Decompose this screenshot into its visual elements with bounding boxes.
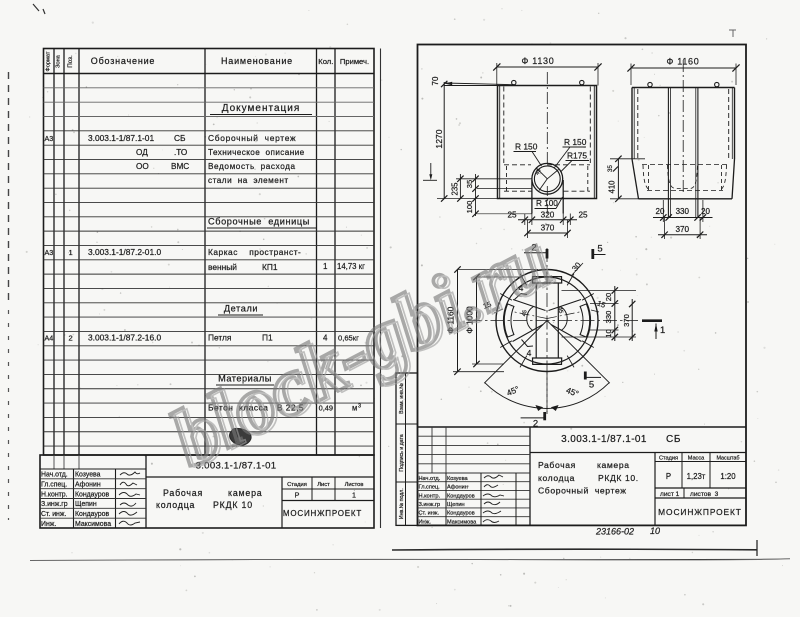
svg-text:Подпись и дата: Подпись и дата xyxy=(399,434,405,471)
svg-text:Масштаб: Масштаб xyxy=(716,456,739,462)
svg-text:Взам. инв.№: Взам. инв.№ xyxy=(399,383,405,414)
svg-text:СБ: СБ xyxy=(666,434,681,445)
svg-text:320: 320 xyxy=(541,210,555,219)
svg-text:Рабочая: Рабочая xyxy=(163,488,203,498)
svg-text:Нач.отд.: Нач.отд. xyxy=(41,472,68,479)
svg-text:Максимова: Максимова xyxy=(447,519,477,525)
svg-text:Инв.№ подл.: Инв.№ подл. xyxy=(399,488,405,519)
svg-text:370: 370 xyxy=(541,224,555,233)
svg-text:3.003.1-1/87.1-01: 3.003.1-1/87.1-01 xyxy=(88,133,154,143)
svg-text:35: 35 xyxy=(465,180,474,188)
svg-text:лист 1: лист 1 xyxy=(660,491,680,498)
svg-text:Примеч.: Примеч. xyxy=(340,57,369,66)
svg-text:23166-02: 23166-02 xyxy=(595,527,634,537)
svg-text:370: 370 xyxy=(675,225,689,234)
svg-text:З.инж.гр: З.инж.гр xyxy=(41,501,68,508)
svg-text:Н.контр.: Н.контр. xyxy=(419,493,441,499)
svg-text:25: 25 xyxy=(578,211,588,220)
svg-text:3: 3 xyxy=(358,404,361,410)
svg-text:Наименование: Наименование xyxy=(221,56,293,66)
svg-text:Сборочный чертеж: Сборочный чертеж xyxy=(208,133,296,143)
svg-text:Ведомость расхода: Ведомость расхода xyxy=(208,162,296,171)
svg-text:Кол.: Кол. xyxy=(318,57,333,66)
svg-text:Ст. инж.: Ст. инж. xyxy=(419,511,440,517)
svg-text:Козуева: Козуева xyxy=(447,476,469,482)
svg-text:Стадия: Стадия xyxy=(659,456,678,462)
svg-text:Р: Р xyxy=(666,472,671,481)
svg-text:330: 330 xyxy=(676,207,690,216)
svg-text:Зона: Зона xyxy=(56,54,62,68)
svg-text:Щепин: Щепин xyxy=(75,501,97,508)
svg-text:70: 70 xyxy=(431,76,440,85)
svg-text:Поз.: Поз. xyxy=(67,55,74,68)
svg-text:Ф 1130: Ф 1130 xyxy=(522,56,555,66)
svg-text:2: 2 xyxy=(533,419,538,430)
svg-text:1270: 1270 xyxy=(434,129,444,148)
svg-text:3.003.1-1/87.1-01: 3.003.1-1/87.1-01 xyxy=(561,434,647,445)
svg-text:Афонин: Афонин xyxy=(447,485,468,491)
svg-text:1,23т: 1,23т xyxy=(687,472,706,481)
svg-text:Сборочные единицы: Сборочные единицы xyxy=(208,217,310,227)
svg-text:ОД: ОД xyxy=(136,148,148,157)
svg-text:Кондауров: Кондауров xyxy=(75,491,109,498)
svg-text:.ТО: .ТО xyxy=(174,148,187,157)
svg-text:330: 330 xyxy=(604,311,613,324)
svg-text:Детали: Детали xyxy=(224,304,258,314)
svg-text:Н.контр.: Н.контр. xyxy=(41,491,68,498)
svg-text:3.003.1-1/87.2-01.0: 3.003.1-1/87.2-01.0 xyxy=(88,247,161,257)
svg-text:МОСИНЖПРОЕКТ: МОСИНЖПРОЕКТ xyxy=(658,507,742,517)
svg-text:1: 1 xyxy=(323,262,328,271)
svg-text:1: 1 xyxy=(69,248,73,257)
svg-text:КП1: КП1 xyxy=(262,262,278,272)
svg-text:20: 20 xyxy=(656,207,665,216)
svg-text:1: 1 xyxy=(660,325,665,336)
svg-text:Гл.спец.: Гл.спец. xyxy=(41,481,67,488)
svg-text:Масса: Масса xyxy=(688,456,705,462)
svg-text:РКДК 10.: РКДК 10. xyxy=(598,473,639,483)
svg-text:235: 235 xyxy=(451,182,460,196)
svg-text:РКДК 10: РКДК 10 xyxy=(213,500,253,510)
svg-text:Петля: Петля xyxy=(208,333,231,343)
svg-text:20: 20 xyxy=(701,207,710,216)
svg-text:камера: камера xyxy=(228,488,262,498)
svg-text:Лист: Лист xyxy=(317,482,330,488)
svg-text:А3: А3 xyxy=(45,134,54,143)
svg-text:R 150: R 150 xyxy=(515,142,538,152)
svg-text:Р: Р xyxy=(295,491,300,500)
svg-text:2: 2 xyxy=(69,334,73,343)
svg-text:Документация: Документация xyxy=(222,103,301,114)
svg-text:10: 10 xyxy=(604,329,613,337)
svg-text:Нач.отд.: Нач.отд. xyxy=(419,476,441,482)
svg-text:14,73 кг: 14,73 кг xyxy=(337,262,365,271)
svg-text:Рабочая: Рабочая xyxy=(538,460,576,470)
svg-text:Козуева: Козуева xyxy=(75,472,101,479)
svg-text:камера: камера xyxy=(597,460,630,470)
svg-text:А3: А3 xyxy=(45,248,54,257)
svg-text:R175: R175 xyxy=(567,151,587,161)
svg-text:Инж.: Инж. xyxy=(41,521,56,528)
svg-text:Ф 1160: Ф 1160 xyxy=(667,57,700,67)
svg-text:Стадия: Стадия xyxy=(287,482,307,488)
svg-text:П1: П1 xyxy=(262,333,273,343)
svg-text:Кондауров: Кондауров xyxy=(447,493,475,499)
svg-text:5: 5 xyxy=(597,244,602,255)
svg-text:1:20: 1:20 xyxy=(720,472,736,481)
svg-text:410: 410 xyxy=(608,180,617,194)
svg-text:5: 5 xyxy=(589,380,594,391)
svg-text:Инж.: Инж. xyxy=(419,519,432,525)
svg-text:1: 1 xyxy=(352,491,356,500)
svg-text:З.инж.гр: З.инж.гр xyxy=(419,502,441,508)
svg-text:Ст. инж.: Ст. инж. xyxy=(41,511,66,518)
svg-text:стали на элемент: стали на элемент xyxy=(208,176,289,185)
svg-text:Кондауров: Кондауров xyxy=(75,511,109,518)
svg-text:Афонин: Афонин xyxy=(75,481,101,488)
svg-text:4: 4 xyxy=(527,348,532,358)
svg-text:СБ: СБ xyxy=(174,133,186,143)
svg-text:венный: венный xyxy=(208,262,237,272)
svg-text:45: 45 xyxy=(556,307,563,314)
svg-text:10: 10 xyxy=(650,526,660,536)
svg-text:Гл.спец.: Гл.спец. xyxy=(419,485,441,491)
svg-text:R 150: R 150 xyxy=(564,137,587,147)
svg-text:Техническое описание: Техническое описание xyxy=(208,148,305,157)
svg-text:Сборочный чертеж: Сборочный чертеж xyxy=(538,486,627,496)
svg-text:Обозначение: Обозначение xyxy=(91,56,155,66)
svg-text:ВМС: ВМС xyxy=(171,162,189,171)
svg-text:Щепин: Щепин xyxy=(447,502,465,508)
svg-text:А4: А4 xyxy=(45,334,54,343)
svg-text:Каркас пространст-: Каркас пространст- xyxy=(208,247,301,257)
svg-text:Максимова: Максимова xyxy=(75,521,111,528)
svg-text:МОСИНЖПРОЕКТ: МОСИНЖПРОЕКТ xyxy=(283,509,362,518)
svg-text:3.003.1-1/87.2-16.0: 3.003.1-1/87.2-16.0 xyxy=(88,333,161,343)
svg-text:Формат: Формат xyxy=(46,51,52,71)
svg-text:370: 370 xyxy=(622,314,631,327)
svg-text:Кондауров: Кондауров xyxy=(447,511,475,517)
svg-text:R 100: R 100 xyxy=(536,199,558,208)
svg-text:листов 3: листов 3 xyxy=(690,491,719,498)
svg-text:100: 100 xyxy=(465,201,474,214)
svg-text:колодца: колодца xyxy=(538,473,575,483)
svg-text:ОО: ОО xyxy=(136,162,149,171)
svg-text:колодца: колодца xyxy=(156,500,195,510)
svg-text:Листов: Листов xyxy=(345,482,364,488)
